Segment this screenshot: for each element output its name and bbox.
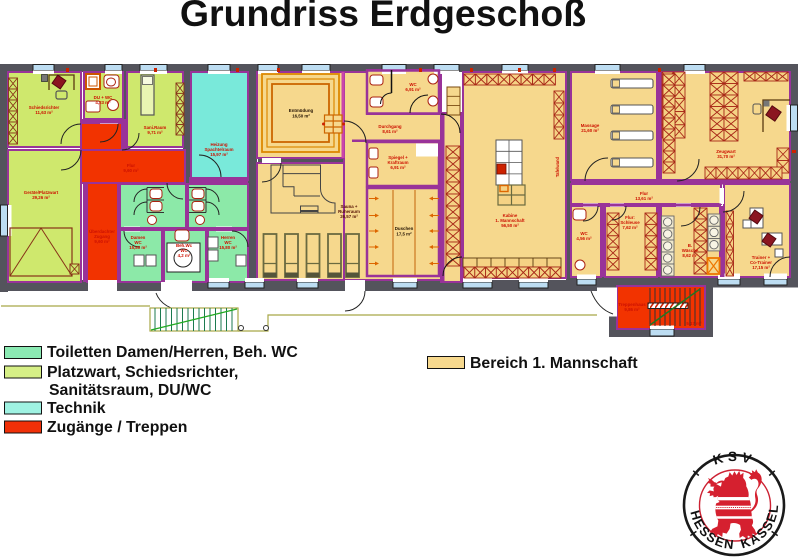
svg-text:5,17 m²: 5,17 m²	[686, 321, 702, 326]
svg-text:17,15 m²: 17,15 m²	[752, 265, 770, 270]
svg-text:Sanitätsraum, DU/WC: Sanitätsraum, DU/WC	[49, 382, 211, 399]
svg-text:9,71 m²: 9,71 m²	[147, 130, 163, 135]
svg-text:Bereich 1. Mannschaft: Bereich 1. Mannschaft	[470, 355, 638, 372]
svg-text:Zugänge / Treppen: Zugänge / Treppen	[47, 419, 187, 436]
svg-text:9,86 m²: 9,86 m²	[624, 307, 640, 312]
svg-text:15,80 m²: 15,80 m²	[129, 245, 147, 250]
svg-text:4,56 m²: 4,56 m²	[576, 236, 592, 241]
svg-text:Entmüdung: Entmüdung	[289, 108, 314, 113]
svg-text:56,50 m²: 56,50 m²	[501, 223, 519, 228]
svg-text:7,62 m²: 7,62 m²	[622, 225, 638, 230]
svg-text:31,70 m²: 31,70 m²	[717, 154, 735, 159]
svg-text:4,23 m²: 4,23 m²	[95, 100, 111, 105]
svg-text:17,5 m²: 17,5 m²	[396, 232, 412, 237]
svg-text:Tafelwand: Tafelwand	[555, 156, 560, 177]
svg-text:Platzwart, Schiedsrichter,: Platzwart, Schiedsrichter,	[47, 364, 238, 381]
svg-text:15,80 m²: 15,80 m²	[219, 245, 237, 250]
svg-text:6,91 m²: 6,91 m²	[405, 87, 421, 92]
svg-text:11,63 m²: 11,63 m²	[35, 110, 53, 115]
svg-text:9,60 m²: 9,60 m²	[123, 168, 139, 173]
svg-text:29,26 m²: 29,26 m²	[32, 195, 50, 200]
svg-text:15,97 m²: 15,97 m²	[210, 152, 228, 157]
svg-text:8,62 m²: 8,62 m²	[682, 253, 698, 258]
svg-text:Grundriss Erdgeschoß: Grundriss Erdgeschoß	[180, 0, 586, 34]
svg-text:9,60 m²: 9,60 m²	[94, 239, 110, 244]
svg-text:21,60 m²: 21,60 m²	[581, 128, 599, 133]
svg-text:16,50 m²: 16,50 m²	[292, 114, 310, 119]
svg-text:Duschen: Duschen	[395, 226, 414, 231]
svg-text:Toiletten Damen/Herren, Beh. W: Toiletten Damen/Herren, Beh. WC	[47, 344, 298, 361]
svg-text:6,91 m²: 6,91 m²	[390, 165, 406, 170]
svg-text:Technik: Technik	[47, 400, 106, 417]
svg-text:13,61 m²: 13,61 m²	[635, 196, 653, 201]
svg-text:26,57 m²: 26,57 m²	[340, 214, 358, 219]
svg-text:8,61 m²: 8,61 m²	[382, 129, 398, 134]
svg-text:4,2 m²: 4,2 m²	[178, 253, 191, 258]
